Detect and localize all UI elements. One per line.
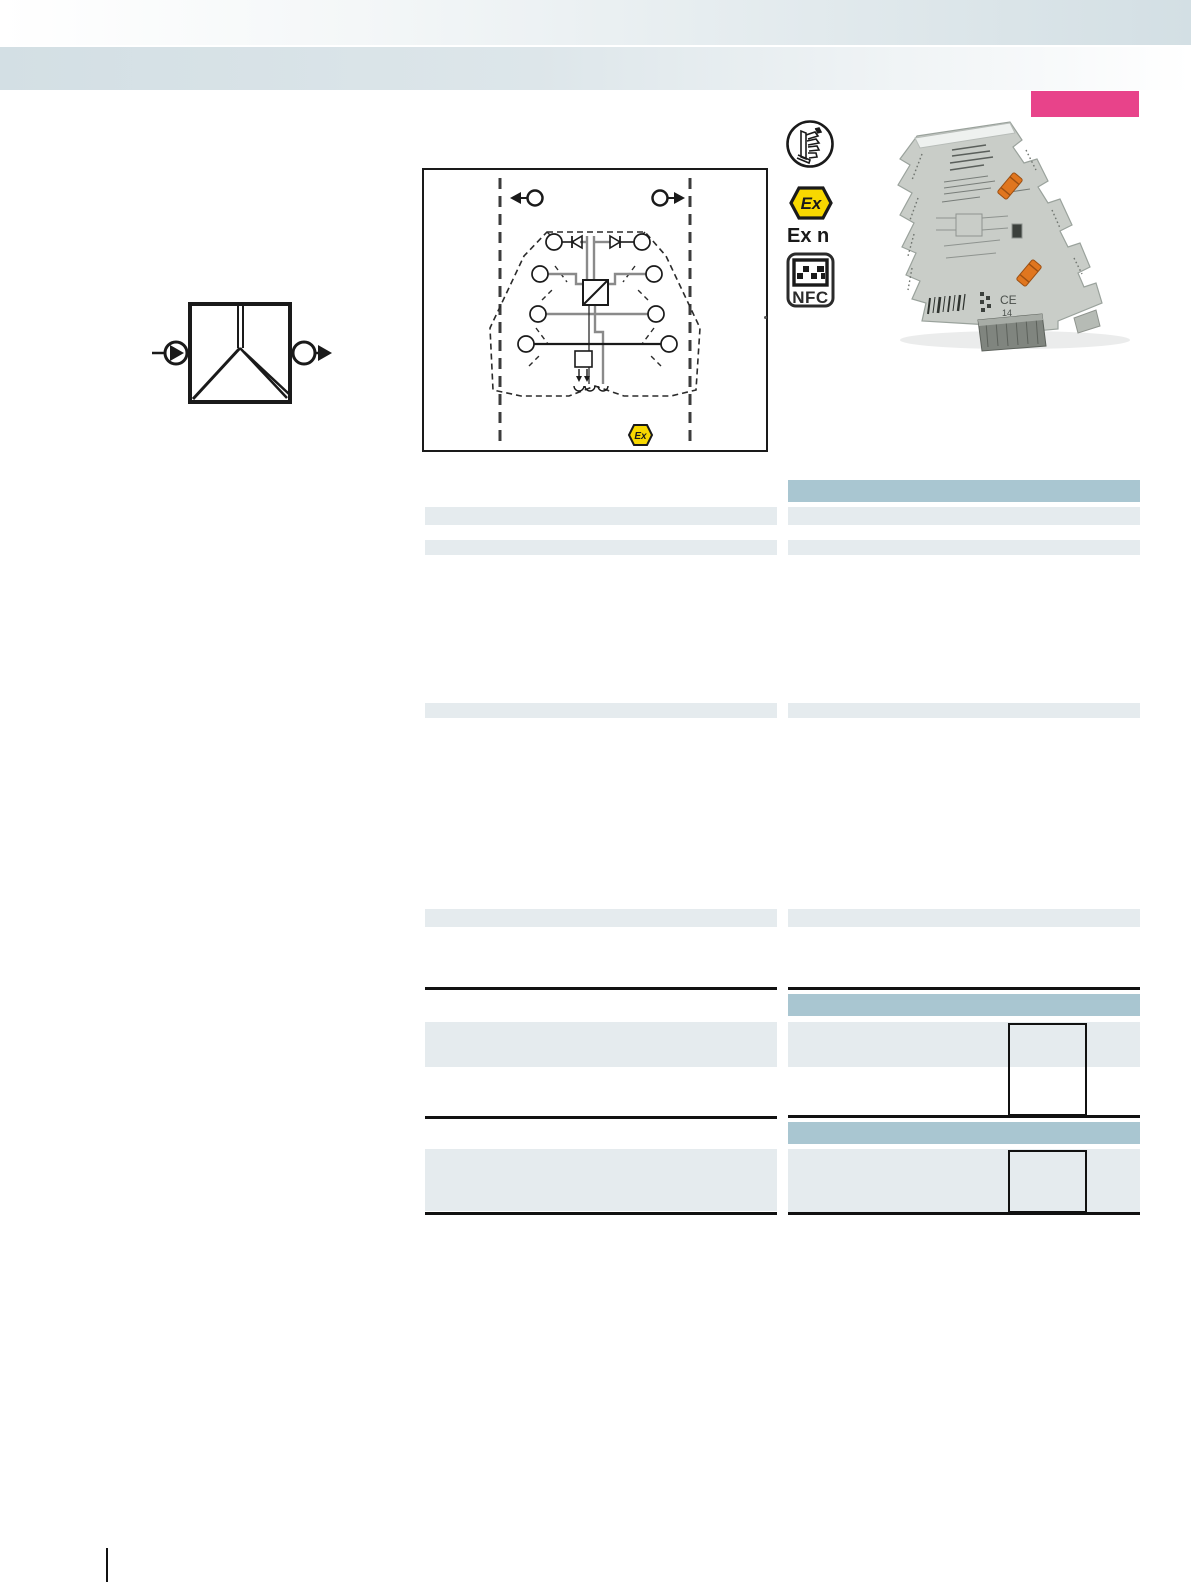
- left-table: [425, 0, 777, 1582]
- table-row: [425, 703, 777, 718]
- table-header: [788, 994, 1140, 1016]
- table-rule: [425, 1116, 777, 1119]
- table-row: [425, 1022, 777, 1067]
- table-rule: [788, 987, 1140, 990]
- callout-box: [1008, 1023, 1087, 1116]
- table-row: [425, 1149, 777, 1211]
- right-table: [788, 0, 1140, 1582]
- table-row: [425, 507, 777, 525]
- table-row: [788, 1022, 1140, 1067]
- table-header: [788, 480, 1140, 502]
- table-rule: [788, 1115, 1140, 1118]
- table-row: [788, 540, 1140, 555]
- table-row: [788, 703, 1140, 718]
- table-row: [788, 507, 1140, 525]
- callout-box: [1008, 1150, 1087, 1213]
- table-row: [788, 1149, 1140, 1213]
- output-symbol: [293, 342, 332, 364]
- footer-tick: [106, 1548, 108, 1582]
- table-row: [788, 909, 1140, 927]
- table-rule: [425, 987, 777, 990]
- input-symbol: [152, 342, 187, 364]
- table-header: [788, 1122, 1140, 1144]
- datasheet-page: Ex Ex Ex n: [0, 0, 1191, 1582]
- function-symbol: [148, 296, 344, 412]
- table-rule: [788, 1212, 1140, 1215]
- table-row: [425, 909, 777, 927]
- table-row: [425, 540, 777, 555]
- table-rule: [425, 1212, 777, 1215]
